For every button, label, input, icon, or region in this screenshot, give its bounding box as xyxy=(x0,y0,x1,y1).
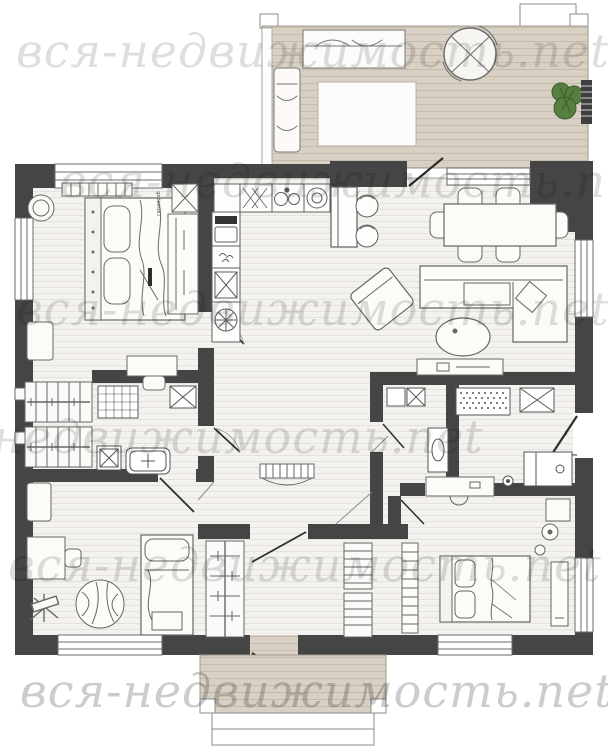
dresser xyxy=(62,183,132,196)
window-bedroom-right xyxy=(575,558,593,632)
terrace-rug xyxy=(318,82,416,146)
double-bed xyxy=(440,556,530,622)
cabinet-x xyxy=(97,446,121,470)
pouf xyxy=(28,195,54,221)
wardrobe-left xyxy=(402,543,418,633)
hob xyxy=(307,188,327,208)
terrace xyxy=(260,4,592,168)
washing-machine xyxy=(170,386,196,408)
wardrobe xyxy=(206,541,244,637)
doormat xyxy=(456,388,510,415)
terrace-rail xyxy=(262,28,272,166)
closet-label: гардероб xyxy=(156,191,162,216)
terrace-top-bump xyxy=(520,4,576,28)
porch-step-1 xyxy=(212,713,374,729)
kitchen-island xyxy=(331,187,357,247)
porch xyxy=(200,655,386,745)
wash-basin xyxy=(503,476,513,486)
window-bottom-right xyxy=(438,635,512,655)
wardrobe-tall xyxy=(168,184,198,314)
tv-console xyxy=(417,359,503,375)
window-living-right xyxy=(575,240,593,317)
terrace-sofa xyxy=(303,30,405,68)
shower xyxy=(98,386,138,418)
entry-cabinet-x xyxy=(520,388,554,412)
porch-step-2 xyxy=(212,729,374,745)
boiler-cabinet xyxy=(428,428,448,472)
floor-plan-svg: гардероб xyxy=(0,0,608,750)
wheel-icon xyxy=(215,309,237,331)
floor-plan-image: гардероб xyxy=(0,0,608,750)
terrace-bench xyxy=(581,80,592,124)
cabinet-x-icon xyxy=(215,272,237,298)
single-bed xyxy=(141,535,193,635)
window-bottom-left xyxy=(58,635,162,655)
oven-icon xyxy=(215,216,237,242)
lamp xyxy=(542,524,558,540)
appliance-column xyxy=(212,212,240,342)
dining-table xyxy=(444,204,556,246)
cabinet xyxy=(27,483,51,521)
round-rug xyxy=(76,580,124,628)
coffee-table xyxy=(436,318,490,356)
porch-deck xyxy=(200,655,386,713)
stool xyxy=(535,545,545,555)
wardrobe-row-1 xyxy=(25,382,92,422)
nightstand xyxy=(546,499,570,521)
wardrobe-row-2 xyxy=(25,427,92,467)
storage-cabinet-x xyxy=(407,388,425,406)
mirror xyxy=(551,562,568,626)
porch-post-right xyxy=(371,699,386,713)
nightstand xyxy=(27,322,53,360)
storage-cabinet xyxy=(387,388,405,406)
window-living-top xyxy=(447,168,530,185)
lounge-chair xyxy=(274,68,300,152)
bathtub xyxy=(126,448,170,474)
entry-bench xyxy=(524,452,572,486)
porch-post-left xyxy=(200,699,215,713)
window-left-bedroom xyxy=(15,218,33,300)
